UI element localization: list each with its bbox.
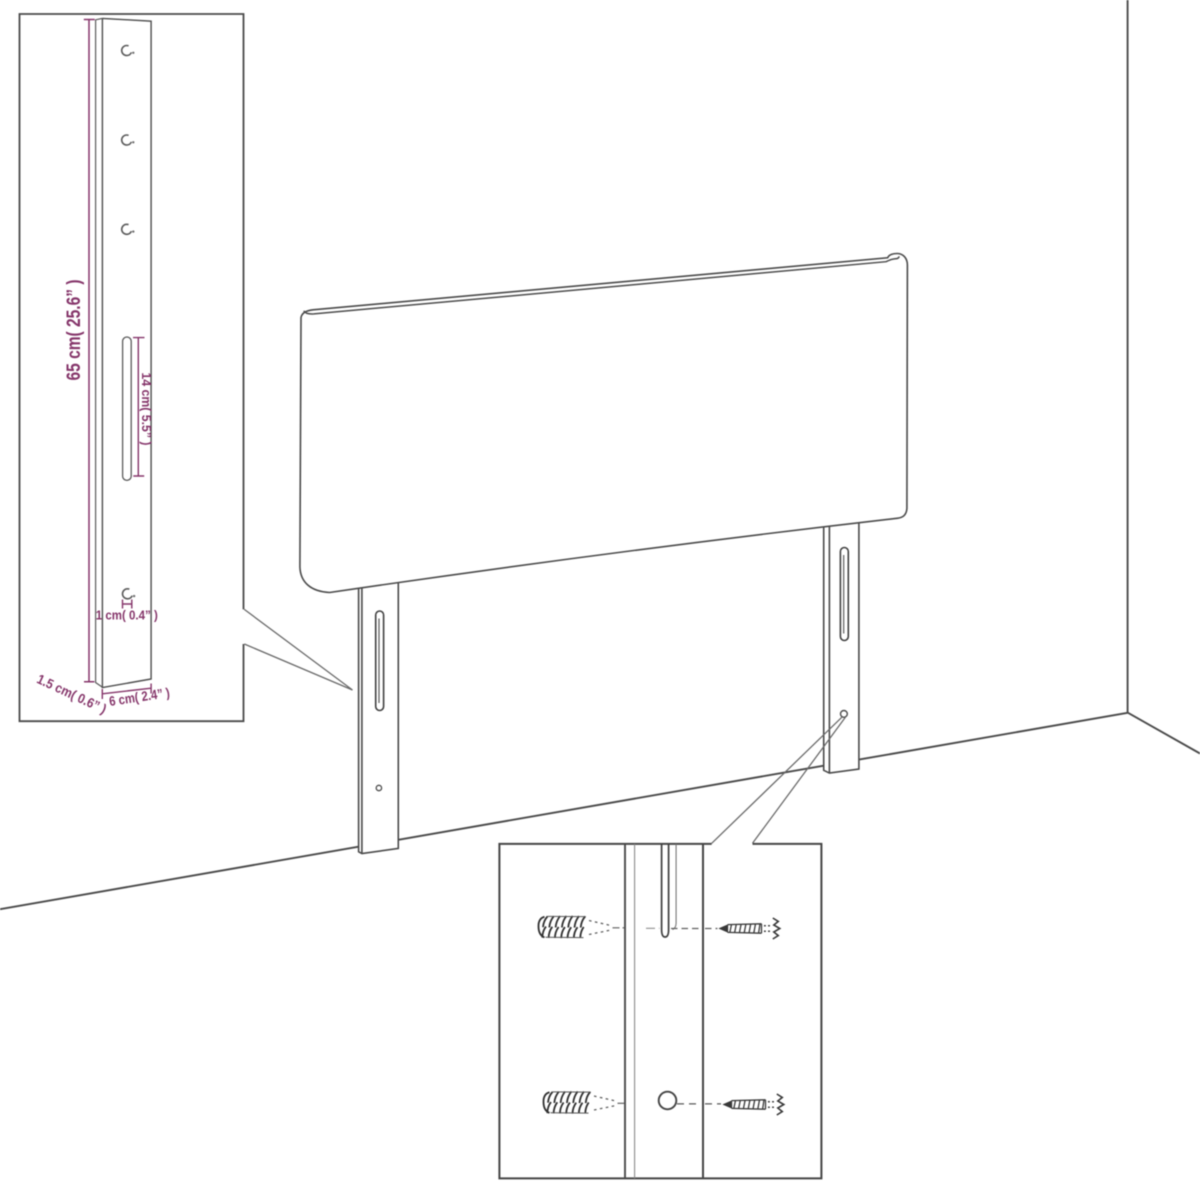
svg-text:1 cm( 0.4” ): 1 cm( 0.4” ): [96, 608, 158, 623]
svg-text:1.5 cm( 0.6” ): 1.5 cm( 0.6” ): [35, 671, 109, 716]
svg-text:14 cm( 5.5” ): 14 cm( 5.5” ): [139, 373, 153, 446]
svg-text:65 cm( 25.6” ): 65 cm( 25.6” ): [63, 280, 85, 381]
svg-text:6 cm( 2.4” ): 6 cm( 2.4” ): [108, 685, 171, 709]
